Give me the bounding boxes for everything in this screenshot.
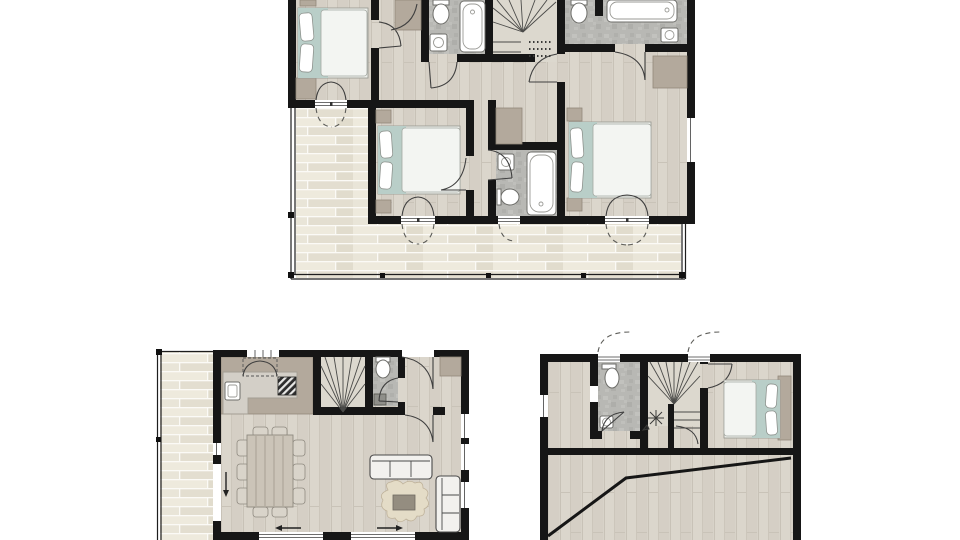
toilet [571, 3, 587, 23]
dining-chair [293, 464, 305, 480]
entry-closet [440, 357, 461, 376]
nightstand [376, 200, 391, 213]
closet [496, 108, 522, 144]
dining-table [247, 435, 293, 507]
wardrobe [653, 56, 687, 88]
wardrobe [296, 78, 316, 99]
double-bed [569, 122, 651, 198]
window [247, 350, 279, 357]
bathtub [460, 1, 485, 52]
washbasin [498, 154, 514, 170]
roof-window-swings [598, 332, 720, 352]
floor-plan-sheet [0, 0, 960, 540]
toilet [605, 368, 619, 388]
sofa [370, 455, 432, 479]
toilet [433, 4, 449, 24]
double-bed [298, 8, 368, 78]
bathtub [607, 0, 677, 22]
toilet [376, 360, 390, 378]
window [590, 386, 598, 402]
side-deck [160, 352, 213, 540]
coffee-table [393, 495, 415, 510]
bathtub [527, 152, 556, 215]
dining-chair [272, 507, 287, 517]
ground-floor-plan [155, 344, 473, 540]
stove [278, 377, 296, 395]
dining-chair [253, 507, 268, 517]
toilet-tank [497, 189, 501, 205]
dining-set [237, 427, 305, 517]
chaise-sofa [436, 476, 460, 532]
bedroom [724, 376, 791, 440]
nightstand [376, 110, 391, 123]
nightstand [300, 0, 316, 6]
dining-chair [293, 488, 305, 504]
double-bed [724, 380, 780, 438]
washbasin [430, 34, 447, 51]
nightstand [567, 198, 582, 211]
dining-chair [293, 440, 305, 456]
upper-floor-plan [283, 0, 703, 288]
loft-floor-plan [538, 330, 803, 540]
window [687, 118, 695, 162]
nightstand [567, 108, 582, 121]
toilet [501, 189, 519, 205]
double-bed [378, 126, 460, 194]
